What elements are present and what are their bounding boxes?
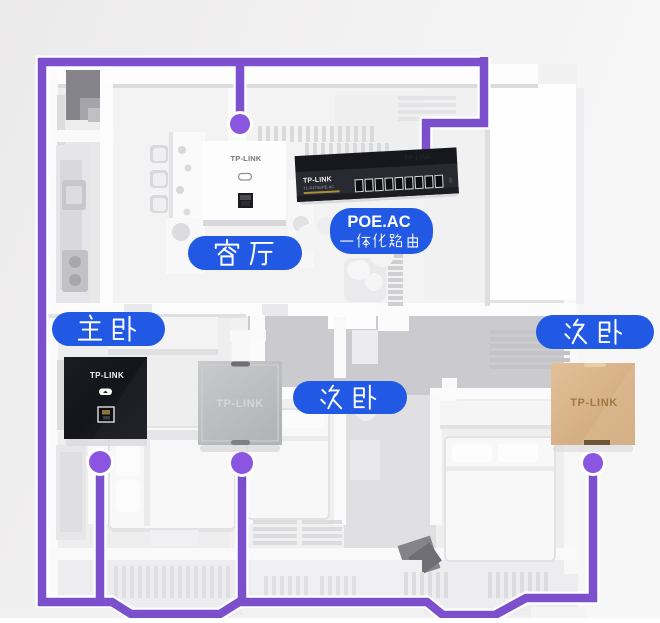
svg-text:TP-LINK: TP-LINK [216,398,264,410]
svg-text:POE.AC: POE.AC [347,213,410,231]
svg-text:TP-LINK: TP-LINK [231,154,262,163]
svg-text:TP-LINK: TP-LINK [90,371,124,380]
svg-text:TP-LINK: TP-LINK [404,154,432,162]
svg-text:TP-LINK: TP-LINK [570,397,618,409]
